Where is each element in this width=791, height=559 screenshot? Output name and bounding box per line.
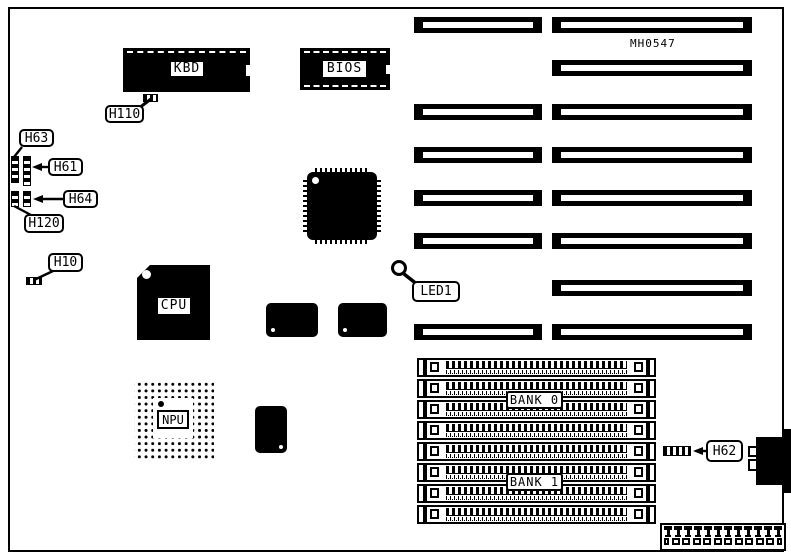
power-connector [660,523,786,551]
simm-slot-6-bar-r [646,465,650,480]
power-pad-12 [777,538,782,545]
flat-chip-1 [266,303,318,337]
cpu-chip: CPU [137,265,210,340]
h61-jumper [23,156,31,186]
power-pin-8 [734,526,742,530]
simm-slot-1-latch-l [430,362,439,372]
expansion-slot-right-8-contact [561,329,743,335]
h10-jumper [26,277,42,285]
expansion-slot-right-6 [552,233,752,249]
expansion-slot-right-4-contact [561,152,743,158]
expansion-slot-left-5 [414,233,542,249]
power-pad-8 [735,538,743,545]
h120-callout: H120 [24,214,64,233]
expansion-slot-right-5-contact [561,195,743,201]
expansion-slot-right-2-contact [561,65,743,71]
small-chip [255,406,287,453]
din-pin-header-1 [748,446,758,457]
expansion-slot-right-7-contact [561,285,743,291]
power-pad-4 [693,538,701,545]
simm-slot-8-bar-l [423,507,427,522]
h110-callout: H110 [105,105,144,123]
h62-callout: H62 [706,440,743,462]
bios-chip-dashline-bottom [304,85,386,87]
simm-slot-2-latch-r [634,383,643,393]
power-pin-12 [774,526,782,530]
expansion-slot-right-4 [552,147,752,163]
power-pad-1 [664,538,669,545]
simm-slot-8-comb-bot [446,517,627,521]
simm-slot-8 [417,505,656,524]
power-pin-6 [714,526,722,530]
simm-slot-4-latch-r [634,425,643,435]
simm-slot-5-bar-r [646,444,650,459]
simm-slot-3-latch-l [430,404,439,414]
expansion-slot-right-2 [552,60,752,76]
expansion-slot-right-3-contact [561,109,743,115]
bank1-label: BANK 1 [506,473,563,491]
simm-slot-5-latch-l [430,446,439,456]
h110-jumper [143,94,158,102]
simm-slot-2-comb-top [446,382,627,390]
expansion-slot-right-7 [552,280,752,296]
simm-slot-1-comb-bot [446,370,627,374]
expansion-slot-left-4 [414,190,542,206]
simm-slot-2-latch-l [430,383,439,393]
simm-slot-7-latch-r [634,488,643,498]
simm-slot-5-comb-top [446,445,627,453]
h64-callout: H64 [63,190,98,208]
qfp-leads-right [377,180,381,232]
expansion-slot-right-3 [552,104,752,120]
power-pin-3 [684,526,692,530]
kbd-chip-notch [246,65,250,76]
expansion-slot-right-1 [552,17,752,33]
expansion-slot-right-8 [552,324,752,340]
simm-slot-4-comb-top [446,424,627,432]
expansion-slot-left-2-contact [423,109,533,115]
simm-slot-6-latch-l [430,467,439,477]
expansion-slot-left-6 [414,324,542,340]
simm-slot-7-latch-l [430,488,439,498]
bios-chip-dashline-top [304,51,386,53]
expansion-slot-left-4-contact [423,195,533,201]
expansion-slot-left-1-contact [423,22,533,28]
power-pad-11 [766,538,774,545]
h63-callout: H63 [19,129,54,147]
h61-callout: H61 [48,158,83,176]
simm-slot-1-comb-top [446,361,627,369]
simm-slot-2-bar-r [646,381,650,396]
expansion-slot-left-6-contact [423,329,533,335]
power-pin-4 [694,526,702,530]
power-pin-7 [724,526,732,530]
h63-jumper [11,156,19,183]
power-pin-10 [754,526,762,530]
qfp-chip-pin1-dot [312,177,319,184]
simm-slot-2-bar-l [423,381,427,396]
expansion-slot-right-1-contact [561,22,743,28]
kbd-chip: KBD [123,48,250,92]
power-connector-pads [662,537,784,546]
h10-callout: H10 [48,253,83,272]
power-pad-7 [724,538,732,545]
power-pad-9 [745,538,753,545]
bank0-label: BANK 0 [506,391,563,409]
simm-slot-4-bar-r [646,423,650,438]
expansion-slot-left-3 [414,147,542,163]
power-pin-5 [704,526,712,530]
simm-slot-7-bar-r [646,486,650,501]
simm-slot-7-comb-bot [446,496,627,500]
simm-slot-6-latch-r [634,467,643,477]
bios-chip-label: BIOS [323,61,366,77]
npu-label: NPU [157,410,189,429]
power-pin-1 [664,526,672,530]
qfp-leads-top [315,168,369,172]
keyboard-din-connector-flange [783,429,791,493]
bios-chip: BIOS [300,48,390,90]
simm-slot-3-bar-l [423,402,427,417]
qfp-leads-left [303,180,307,232]
flat-chip-1-pin1-dot [271,328,275,332]
expansion-slot-left-3-contact [423,152,533,158]
npu-pin1-dot [158,401,164,407]
kbd-chip-dashline [127,51,246,53]
led1-indicator [391,260,407,276]
power-connector-pins [662,525,784,535]
flat-chip-2-pin1-dot [343,328,347,332]
simm-slot-1-bar-l [423,360,427,375]
motherboard-diagram-page: MH0547 KBD BIOS CPU NPU [0,0,791,559]
power-pin-9 [744,526,752,530]
qfp-leads-bottom [315,240,369,244]
simm-slot-8-comb-top [446,508,627,516]
simm-slot-5-comb-bot [446,454,627,458]
simm-slot-3-comb-bot [446,412,627,416]
part-number: MH0547 [630,37,676,50]
qfp-chip [307,172,377,240]
simm-slot-8-bar-r [646,507,650,522]
simm-slot-4-comb-bot [446,433,627,437]
expansion-slot-right-6-contact [561,238,743,244]
power-pad-5 [703,538,711,545]
din-pin-header-2 [748,459,758,471]
simm-slot-5 [417,442,656,461]
keyboard-din-connector [756,437,784,485]
power-pad-3 [682,538,690,545]
simm-slot-1-bar-r [646,360,650,375]
simm-slot-1-latch-r [634,362,643,372]
simm-slot-4-latch-l [430,425,439,435]
power-pad-6 [714,538,722,545]
flat-chip-2 [338,303,387,337]
simm-slot-8-latch-r [634,509,643,519]
simm-slot-8-latch-l [430,509,439,519]
small-chip-pin1-dot [279,445,283,449]
simm-slot-4-bar-l [423,423,427,438]
expansion-slot-left-5-contact [423,238,533,244]
power-pad-10 [756,538,764,545]
simm-slot-6-bar-l [423,465,427,480]
power-pad-2 [672,538,680,545]
cpu-chip-label: CPU [158,298,190,314]
simm-slot-5-bar-l [423,444,427,459]
bios-chip-notch [386,65,390,74]
h120-jumper [11,191,19,207]
simm-slot-5-latch-r [634,446,643,456]
simm-slot-3-latch-r [634,404,643,414]
simm-slot-3-bar-r [646,402,650,417]
power-pin-2 [674,526,682,530]
npu-socket: NPU [134,380,214,459]
simm-slot-1 [417,358,656,377]
expansion-slot-left-2 [414,104,542,120]
power-pin-11 [764,526,772,530]
h64-jumper [23,191,31,207]
simm-slot-7-bar-l [423,486,427,501]
led1-callout: LED1 [412,281,460,302]
expansion-slot-right-5 [552,190,752,206]
h62-jumper [663,446,691,456]
kbd-chip-label: KBD [171,62,203,76]
simm-slot-4 [417,421,656,440]
expansion-slot-left-1 [414,17,542,33]
